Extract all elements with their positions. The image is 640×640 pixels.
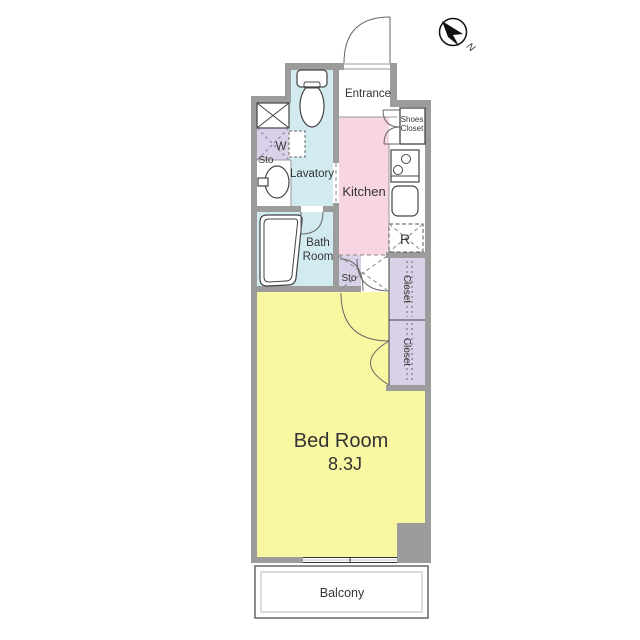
- floor-plan-page: N Entrance Shoes Closet Kitchen Lavatory…: [0, 0, 640, 640]
- basin-faucet: [258, 178, 268, 186]
- compass-north-label: N: [464, 41, 477, 55]
- wash-basin: [265, 166, 289, 198]
- wall-bath-right: [333, 203, 339, 290]
- wall-lavatory-kitchen-upper: [333, 63, 339, 163]
- window-sliding: [303, 557, 397, 563]
- label-bath-1: Bath: [306, 237, 330, 249]
- toilet-bowl: [300, 85, 324, 127]
- label-bath-2: Room: [303, 251, 334, 263]
- label-refrigerator: R: [400, 231, 410, 247]
- label-closet-lower: Closet: [401, 338, 412, 367]
- wall-bath-top-right: [323, 206, 339, 212]
- wall-pillar: [397, 523, 431, 563]
- bathtub-outer: [260, 215, 302, 286]
- label-shoes-closet-1: Shoes: [401, 115, 424, 124]
- wall-bottom-left: [251, 557, 303, 563]
- label-bedroom-size: 8.3J: [328, 454, 362, 474]
- label-closet-upper: Closet: [401, 275, 412, 304]
- label-storage: Sto: [341, 273, 356, 284]
- label-shoes-closet-2: Closet: [401, 124, 424, 133]
- front-door-arc: [344, 17, 390, 63]
- floor-plan: N Entrance Shoes Closet Kitchen Lavatory…: [0, 0, 640, 640]
- wall-top-right-stub: [390, 100, 431, 107]
- washing-machine-space: [289, 131, 305, 157]
- north-compass: N: [440, 19, 478, 55]
- label-washer-sto: Sto: [258, 155, 273, 166]
- label-balcony: Balcony: [320, 586, 365, 600]
- wall-right: [425, 100, 431, 563]
- wall-left: [251, 96, 257, 563]
- label-kitchen: Kitchen: [342, 184, 385, 199]
- wall-closet-top: [386, 252, 431, 258]
- toilet-tank: [297, 70, 327, 87]
- label-lavatory: Lavatory: [290, 168, 334, 180]
- label-entrance: Entrance: [345, 88, 391, 100]
- wall-closet-bottom: [386, 385, 431, 391]
- wall-bedroom-top: [251, 286, 361, 292]
- label-washer-w: W: [276, 141, 287, 153]
- kitchen-sink: [392, 186, 418, 216]
- wall-bath-top-left: [251, 206, 301, 212]
- label-bedroom: Bed Room: [294, 430, 389, 452]
